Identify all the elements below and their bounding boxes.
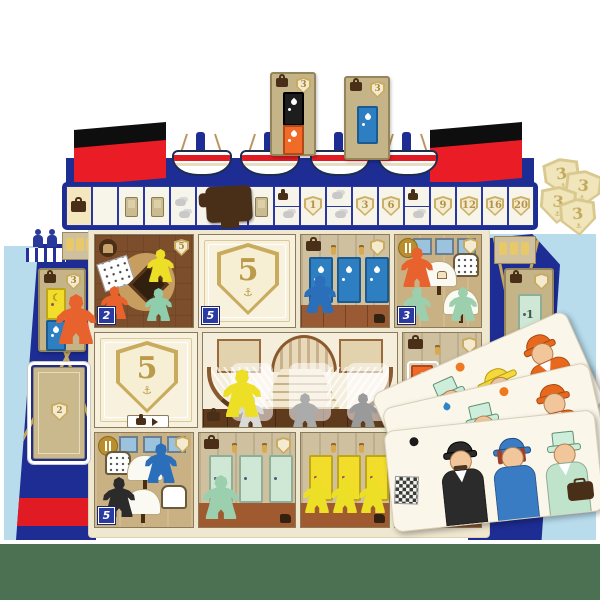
room-dining-top: 3 (394, 234, 482, 328)
suitcase-icon (350, 82, 362, 91)
face-down-card[interactable]: 2 (33, 367, 85, 459)
room-cabin-yellow (300, 432, 390, 528)
hull-red-stripe (16, 498, 96, 526)
suitcase-icon (136, 418, 146, 425)
track-cell (118, 186, 144, 226)
green-door (239, 455, 263, 503)
suitcase-icon (567, 481, 595, 502)
shield-icon: 3 (370, 81, 385, 98)
pawn-base (221, 220, 239, 229)
orange-door (283, 125, 304, 155)
room-dining-bottom: 5 (94, 432, 194, 528)
track-cell (170, 186, 196, 226)
passenger-blue-dress-lady (489, 433, 538, 521)
deckhouse-window (510, 242, 518, 255)
lantern-icon (359, 247, 364, 255)
room-lounge: 5 2 (94, 234, 194, 328)
score-coin[interactable]: 3⚓ (558, 197, 597, 238)
room-value-badge: 5 (202, 307, 219, 324)
track-cell-score: 6 (378, 186, 404, 226)
lantern-icon (359, 445, 364, 453)
lantern-icon (262, 445, 267, 453)
armchair-icon (99, 239, 117, 257)
anchor-icon: ⚓ (221, 287, 275, 298)
porter-icon (374, 514, 385, 523)
suitcase-icon (276, 78, 288, 87)
funnel-right (430, 126, 522, 182)
shield-icon: 3 (356, 196, 374, 216)
shield-icon (534, 273, 549, 290)
deckhouse-window (76, 238, 84, 251)
deckhouse-window (499, 242, 507, 255)
track-cell-score: 1 (300, 186, 326, 226)
track-cell (92, 186, 118, 226)
shield-icon: 9 (434, 196, 452, 216)
arrow-icon (152, 418, 162, 426)
smoke-icon (175, 199, 186, 206)
door-number: 1 (526, 308, 534, 321)
smoke-icon (413, 211, 424, 218)
luggage-slot (127, 415, 169, 428)
cabin-card-blue[interactable]: 3 (344, 76, 390, 160)
shield-icon: 1 (304, 196, 322, 216)
houndstooth-swatch (394, 476, 419, 505)
lantern-icon (331, 247, 336, 255)
suitcase-icon (408, 193, 418, 200)
funnel-left (74, 126, 166, 182)
track-cell (144, 186, 170, 226)
porter-icon (280, 514, 291, 523)
room-cabin-blue (300, 234, 390, 328)
suitcase-icon (278, 193, 288, 200)
pawn-handle (198, 193, 209, 208)
lantern-icon (232, 445, 237, 453)
suitcase-icon (207, 412, 220, 421)
brown-suitcase-pawn[interactable] (205, 185, 253, 223)
funnel-body (430, 140, 522, 186)
track-cell-split (326, 186, 352, 226)
track-cell-score: 9 (430, 186, 456, 226)
card-icon (125, 197, 138, 217)
suitcase-icon (408, 339, 423, 349)
smoke-icon (283, 211, 294, 218)
room-cabin-green (198, 432, 296, 528)
window (435, 238, 454, 255)
track-cell-split (404, 186, 430, 226)
green-door (269, 455, 293, 503)
orange-dot (499, 386, 510, 397)
smoke-icon (332, 192, 343, 199)
shield-icon: 16 (486, 196, 504, 216)
room-promenade-mid: 5⚓ (94, 332, 198, 428)
deckhouse-window (66, 238, 74, 251)
card-icon (151, 197, 164, 217)
shield-icon: 6 (382, 196, 400, 216)
shield-icon (370, 239, 385, 256)
passenger-figure-icon (33, 229, 43, 247)
suitcase-icon (71, 201, 86, 212)
room-value-badge: 3 (398, 307, 415, 324)
shield-icon: 5 (174, 239, 189, 256)
table-surface (0, 544, 600, 600)
shield-icon (276, 437, 291, 454)
shield-icon: 12 (460, 196, 478, 216)
dotted-chair (161, 485, 187, 509)
room-promenade-top: 5⚓ 5 (198, 234, 296, 328)
board-game-scene: 1 3 6 9 12 16 20 3 3 3⚓ 3⚓ 3⚓ 3⚓ 5 (0, 0, 600, 600)
orange-dot (454, 361, 466, 373)
blue-door (357, 106, 378, 144)
suitcase-icon (510, 274, 522, 283)
moon-icon: ☾ (52, 293, 61, 304)
room-grand-staircase (202, 332, 398, 428)
lantern-icon (435, 347, 440, 355)
passenger-black-suit-man (438, 437, 487, 525)
drop-icon (442, 402, 452, 412)
suitcase-icon (44, 274, 56, 283)
dotted-chair (453, 253, 479, 277)
lamp (437, 271, 447, 279)
card-icon (255, 197, 268, 217)
shield-icon: 3 (66, 273, 81, 290)
porter-icon (374, 314, 385, 323)
passenger-figure-icon (47, 229, 57, 247)
track-cell-score: 3 (352, 186, 378, 226)
black-door (283, 92, 304, 126)
passenger-card[interactable] (383, 409, 600, 533)
passenger-mint-coat-person (541, 430, 590, 518)
suitcase-icon (306, 241, 321, 251)
track-cell-start (66, 186, 92, 226)
shield-icon: 20 (512, 196, 530, 216)
card-slot-frame: 2 (28, 362, 90, 464)
room-value-badge: 2 (98, 307, 115, 324)
blue-door (365, 257, 389, 303)
anchor-icon: ⚓ (120, 385, 174, 396)
black-dot (409, 437, 419, 447)
anchor-icon: ⚓ (564, 222, 594, 232)
deck-railing (26, 248, 66, 262)
track-cell-score: 20 (508, 186, 534, 226)
deckhouse-window (521, 242, 529, 255)
funnel-body (74, 140, 166, 186)
smoke-icon (335, 211, 346, 218)
track-cell-score: 16 (482, 186, 508, 226)
suitcase-icon (204, 439, 219, 449)
lantern-icon (331, 445, 336, 453)
track-cell-score: 12 (456, 186, 482, 226)
room-value-badge: 5 (98, 507, 115, 524)
deckhouse-right (494, 236, 536, 264)
smoke-icon (179, 211, 190, 218)
track-cell-split (274, 186, 300, 226)
blue-door (337, 257, 361, 303)
cabin-card-black-orange[interactable]: 3 (270, 72, 316, 156)
